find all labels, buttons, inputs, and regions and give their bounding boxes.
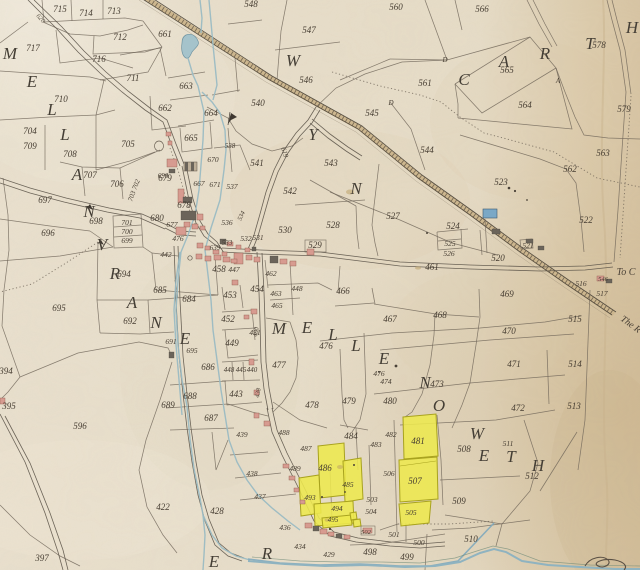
svg-text:579: 579 <box>617 104 631 114</box>
svg-text:500: 500 <box>413 538 425 547</box>
svg-text:N: N <box>149 313 163 332</box>
svg-text:465: 465 <box>271 301 283 310</box>
svg-text:451: 451 <box>249 328 260 337</box>
svg-text:530: 530 <box>278 225 292 235</box>
svg-text:W: W <box>470 424 486 443</box>
svg-text:439: 439 <box>236 430 248 439</box>
svg-text:W: W <box>286 51 302 70</box>
svg-text:438: 438 <box>246 469 258 478</box>
svg-text:452: 452 <box>221 314 235 324</box>
svg-text:E: E <box>478 446 490 465</box>
svg-text:470: 470 <box>502 326 516 336</box>
svg-text:502: 502 <box>361 529 372 536</box>
svg-text:395: 395 <box>1 401 16 411</box>
svg-text:543: 543 <box>324 158 338 168</box>
svg-text:M: M <box>2 44 18 63</box>
svg-text:394: 394 <box>0 366 13 376</box>
svg-text:D: D <box>387 99 393 107</box>
svg-text:705: 705 <box>121 139 135 149</box>
svg-text:440: 440 <box>247 366 258 374</box>
svg-text:R: R <box>539 44 551 63</box>
svg-text:699: 699 <box>121 236 133 245</box>
svg-text:695: 695 <box>52 303 66 313</box>
svg-text:E: E <box>179 329 191 348</box>
svg-text:443: 443 <box>229 389 243 399</box>
svg-text:A: A <box>498 52 510 71</box>
svg-text:661: 661 <box>158 29 172 39</box>
svg-text:462: 462 <box>265 269 277 278</box>
svg-text:494: 494 <box>331 504 343 513</box>
svg-text:717: 717 <box>26 43 40 53</box>
svg-text:483: 483 <box>370 440 382 449</box>
svg-text:R: R <box>109 264 121 283</box>
svg-text:479: 479 <box>342 396 356 406</box>
svg-text:505: 505 <box>405 508 417 517</box>
svg-text:563: 563 <box>596 148 610 158</box>
svg-text:D: D <box>441 56 447 64</box>
svg-text:566: 566 <box>475 4 489 14</box>
svg-text:696: 696 <box>41 228 55 238</box>
svg-text:454: 454 <box>250 284 264 294</box>
svg-text:667: 667 <box>193 179 205 188</box>
svg-text:E: E <box>26 72 38 91</box>
svg-text:521: 521 <box>522 241 533 250</box>
svg-text:473: 473 <box>430 379 444 389</box>
svg-text:T: T <box>506 447 517 466</box>
svg-text:E: E <box>378 349 390 368</box>
svg-text:A: A <box>71 165 83 184</box>
svg-text:537: 537 <box>226 182 238 191</box>
svg-text:712: 712 <box>113 32 127 42</box>
svg-text:498: 498 <box>363 547 377 557</box>
svg-text:499: 499 <box>400 552 414 562</box>
svg-text:665: 665 <box>184 133 198 143</box>
svg-text:461: 461 <box>425 262 439 272</box>
svg-text:692: 692 <box>123 316 137 326</box>
svg-text:L: L <box>59 125 69 144</box>
svg-text:708: 708 <box>63 149 77 159</box>
svg-text:428: 428 <box>210 506 224 516</box>
svg-text:700: 700 <box>121 227 133 236</box>
svg-text:524: 524 <box>446 221 460 231</box>
svg-text:436: 436 <box>279 523 291 532</box>
svg-text:514: 514 <box>568 359 582 369</box>
svg-text:H: H <box>531 456 546 475</box>
svg-text:478: 478 <box>305 400 319 410</box>
svg-text:664: 664 <box>204 108 218 118</box>
svg-text:488: 488 <box>278 428 290 437</box>
svg-text:482: 482 <box>385 430 397 439</box>
svg-text:447: 447 <box>228 265 240 274</box>
svg-text:560: 560 <box>389 2 403 12</box>
svg-text:484: 484 <box>344 431 358 441</box>
svg-text:544: 544 <box>420 145 434 155</box>
svg-text:E: E <box>301 318 313 337</box>
svg-text:713: 713 <box>107 6 121 16</box>
svg-text:448: 448 <box>224 366 235 374</box>
svg-text:540: 540 <box>251 98 265 108</box>
svg-text:714: 714 <box>79 8 93 18</box>
svg-text:434: 434 <box>294 542 306 551</box>
svg-text:520: 520 <box>491 253 505 263</box>
svg-text:486: 486 <box>318 463 332 473</box>
svg-text:M: M <box>271 319 287 338</box>
svg-text:504: 504 <box>365 507 377 516</box>
svg-text:437: 437 <box>254 492 266 501</box>
svg-text:468: 468 <box>433 310 447 320</box>
svg-text:E: E <box>208 552 220 570</box>
svg-text:707: 707 <box>83 170 97 180</box>
svg-text:662: 662 <box>158 103 172 113</box>
svg-text:474: 474 <box>380 377 392 386</box>
svg-text:N: N <box>418 373 432 392</box>
svg-text:A: A <box>126 293 138 312</box>
svg-text:L: L <box>350 336 360 355</box>
svg-text:503: 503 <box>366 495 378 504</box>
svg-text:O: O <box>433 396 445 415</box>
svg-text:548: 548 <box>244 0 258 9</box>
svg-text:538: 538 <box>225 142 236 150</box>
svg-text:467: 467 <box>383 314 397 324</box>
svg-text:H: H <box>625 18 640 37</box>
svg-text:546: 546 <box>598 276 609 283</box>
svg-text:493: 493 <box>304 493 316 502</box>
svg-text:689: 689 <box>161 400 175 410</box>
svg-text:709: 709 <box>23 141 37 151</box>
svg-text:466: 466 <box>336 286 350 296</box>
svg-text:L: L <box>327 325 337 344</box>
svg-text:704: 704 <box>23 126 37 136</box>
svg-text:C: C <box>458 70 470 89</box>
svg-text:509: 509 <box>452 496 466 506</box>
svg-text:522: 522 <box>579 215 593 225</box>
svg-text:N: N <box>82 202 96 221</box>
svg-text:448: 448 <box>291 284 303 293</box>
svg-text:508: 508 <box>457 444 471 454</box>
svg-text:685: 685 <box>153 285 167 295</box>
svg-text:429: 429 <box>323 550 335 559</box>
svg-text:T: T <box>585 34 596 53</box>
svg-text:453: 453 <box>223 290 237 300</box>
svg-text:536: 536 <box>221 218 233 227</box>
svg-text:596: 596 <box>73 421 87 431</box>
svg-text:688: 688 <box>183 391 197 401</box>
svg-text:510: 510 <box>464 534 478 544</box>
svg-text:527: 527 <box>386 211 400 221</box>
svg-text:684: 684 <box>182 294 196 304</box>
svg-text:547: 547 <box>302 25 316 35</box>
svg-text:528: 528 <box>326 220 340 230</box>
svg-text:663: 663 <box>179 81 193 91</box>
svg-text:691: 691 <box>165 337 176 346</box>
svg-text:711: 711 <box>127 73 140 83</box>
svg-text:545: 545 <box>365 108 379 118</box>
svg-text:Y: Y <box>308 125 319 144</box>
svg-text:445: 445 <box>236 366 247 374</box>
svg-text:532: 532 <box>240 234 252 243</box>
svg-text:481: 481 <box>411 436 425 446</box>
svg-text:564: 564 <box>518 100 532 110</box>
svg-text:686: 686 <box>201 362 215 372</box>
svg-text:531: 531 <box>252 233 263 242</box>
svg-text:517: 517 <box>596 289 608 298</box>
svg-text:515: 515 <box>568 314 582 324</box>
svg-text:442: 442 <box>160 250 172 259</box>
svg-text:639: 639 <box>210 244 221 252</box>
svg-text:679: 679 <box>158 173 172 183</box>
svg-text:687: 687 <box>204 413 218 423</box>
svg-text:677: 677 <box>166 220 178 229</box>
svg-text:526: 526 <box>443 249 455 258</box>
svg-text:506: 506 <box>383 469 395 478</box>
svg-text:471: 471 <box>507 359 521 369</box>
svg-text:716: 716 <box>92 54 106 64</box>
svg-text:A: A <box>555 77 561 85</box>
svg-text:489: 489 <box>289 464 301 473</box>
svg-text:To C: To C <box>617 267 636 278</box>
svg-text:561: 561 <box>418 78 432 88</box>
svg-text:458: 458 <box>212 264 226 274</box>
svg-text:449: 449 <box>225 338 239 348</box>
svg-text:R: R <box>261 544 273 563</box>
svg-text:541: 541 <box>250 158 264 168</box>
svg-text:697: 697 <box>38 195 52 205</box>
svg-text:507: 507 <box>408 476 422 486</box>
svg-text:476: 476 <box>172 234 184 243</box>
svg-text:525: 525 <box>444 239 456 248</box>
svg-text:501: 501 <box>388 530 399 539</box>
svg-text:562: 562 <box>563 164 577 174</box>
svg-text:680: 680 <box>150 213 164 223</box>
svg-text:513: 513 <box>567 401 581 411</box>
svg-text:463: 463 <box>270 289 282 298</box>
svg-text:487: 487 <box>300 444 312 453</box>
svg-text:480: 480 <box>383 396 397 406</box>
svg-text:495: 495 <box>328 516 339 524</box>
svg-text:477: 477 <box>272 360 286 370</box>
svg-text:701: 701 <box>121 218 132 227</box>
svg-text:671: 671 <box>209 180 220 189</box>
svg-text:529: 529 <box>308 240 322 250</box>
svg-text:533: 533 <box>222 239 233 247</box>
svg-text:678: 678 <box>177 200 191 210</box>
svg-text:397: 397 <box>34 553 49 563</box>
svg-text:706: 706 <box>110 179 124 189</box>
svg-text:485: 485 <box>342 480 354 489</box>
svg-text:670: 670 <box>207 155 219 164</box>
svg-text:546: 546 <box>299 75 313 85</box>
svg-text:523: 523 <box>494 177 508 187</box>
svg-text:542: 542 <box>283 186 297 196</box>
svg-text:L: L <box>46 100 56 119</box>
svg-text:472: 472 <box>511 403 525 413</box>
svg-text:715: 715 <box>53 4 67 14</box>
svg-text:469: 469 <box>500 289 514 299</box>
svg-text:422: 422 <box>156 502 170 512</box>
svg-text:516: 516 <box>575 279 587 288</box>
svg-text:N: N <box>349 179 363 198</box>
